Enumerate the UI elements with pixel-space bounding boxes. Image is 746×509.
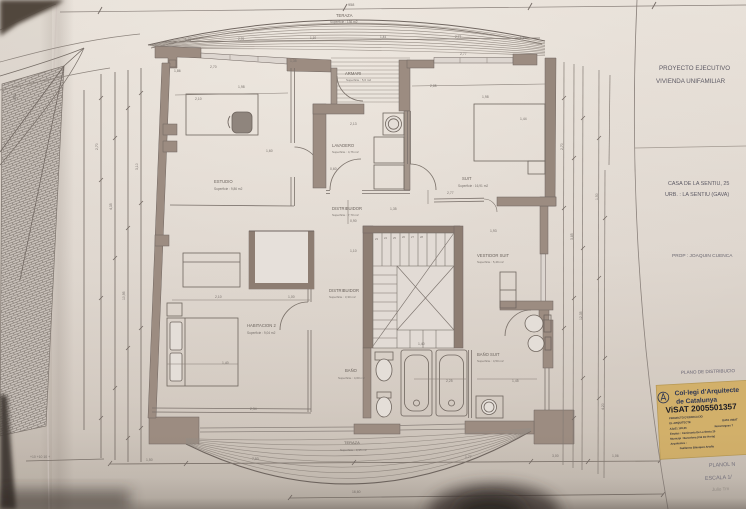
svg-text:Superficie : 3,30 m2: Superficie : 3,30 m2: [329, 295, 356, 299]
svg-text:1,44: 1,44: [380, 35, 386, 39]
svg-text:2,77: 2,77: [455, 35, 461, 39]
svg-text:1,60: 1,60: [266, 149, 273, 153]
svg-text:2,70: 2,70: [560, 143, 564, 150]
svg-text:CASA DE LA SENTIU, 25: CASA DE LA SENTIU, 25: [668, 181, 729, 187]
svg-text:0,90: 0,90: [350, 219, 357, 223]
svg-text:2,25: 2,25: [446, 379, 453, 383]
svg-text:Superficie : 5,49 m2: Superficie : 5,49 m2: [477, 260, 504, 264]
svg-text:LAVADERO: LAVADERO: [332, 143, 355, 148]
svg-text:1,93: 1,93: [490, 229, 497, 233]
svg-text:1,54: 1,54: [520, 36, 526, 40]
svg-text:1,00: 1,00: [288, 295, 295, 299]
svg-text:2,34: 2,34: [250, 407, 257, 411]
svg-text:2,70: 2,70: [210, 65, 217, 69]
svg-text:1,35: 1,35: [390, 207, 397, 211]
svg-text:1,10: 1,10: [350, 249, 357, 253]
svg-text:958: 958: [348, 3, 354, 7]
svg-text:Superficie : 4,76 m2: Superficie : 4,76 m2: [332, 150, 359, 154]
svg-text:ESTUDIO: ESTUDIO: [214, 179, 233, 184]
svg-text:VESTIDOR SUIT: VESTIDOR SUIT: [477, 253, 510, 258]
svg-text:VIVIENDA UNIFAMILIAR: VIVIENDA UNIFAMILIAR: [656, 78, 726, 85]
svg-text:12,35: 12,35: [579, 311, 583, 320]
svg-text:2,77: 2,77: [447, 191, 454, 195]
svg-text:10,95: 10,95: [122, 291, 126, 300]
svg-text:Superficie : 136 m2: Superficie : 136 m2: [330, 20, 358, 24]
svg-text:4,35: 4,35: [109, 203, 113, 210]
svg-text:3,85: 3,85: [570, 233, 574, 240]
svg-text:858: 858: [13, 94, 17, 100]
svg-text:2,10: 2,10: [215, 295, 222, 299]
svg-text:ARMARI: ARMARI: [345, 71, 361, 76]
svg-text:1,35: 1,35: [185, 38, 191, 42]
svg-text:1,98: 1,98: [482, 95, 489, 99]
svg-text:3,10: 3,10: [135, 163, 139, 170]
svg-text:2,10: 2,10: [195, 97, 202, 101]
svg-text:1,40: 1,40: [418, 342, 425, 346]
svg-text:2,70: 2,70: [95, 143, 99, 150]
svg-text:PROP : JOAQUIN CUENCA: PROP : JOAQUIN CUENCA: [672, 253, 733, 259]
svg-text:1,50: 1,50: [595, 193, 599, 200]
svg-text:Superficie : 4,60 m2: Superficie : 4,60 m2: [338, 376, 365, 380]
svg-text:Superficie : 7,70 m2: Superficie : 7,70 m2: [332, 213, 359, 217]
svg-text:Superficie : 5,6 m2: Superficie : 5,6 m2: [346, 78, 371, 82]
svg-text:HABITACION 2: HABITACION 2: [247, 323, 276, 328]
svg-text:4,20: 4,20: [601, 403, 605, 410]
svg-text:DISTRIBUIDOR: DISTRIBUIDOR: [329, 288, 359, 293]
svg-text:1,86: 1,86: [174, 69, 181, 73]
svg-text:1,45: 1,45: [512, 379, 519, 383]
svg-text:BAÑO SUIT: BAÑO SUIT: [477, 352, 500, 357]
svg-text:1,10: 1,10: [310, 36, 316, 40]
svg-text:2,70: 2,70: [238, 37, 244, 41]
svg-text:1,98: 1,98: [238, 85, 245, 89]
svg-text:2,13: 2,13: [350, 122, 357, 126]
svg-text:2,77: 2,77: [460, 52, 467, 56]
svg-text:Superficie : 9,04 m2: Superficie : 9,04 m2: [247, 331, 276, 335]
svg-text:BAÑO: BAÑO: [345, 368, 358, 373]
svg-text:PROYECTO EJECUTIVO: PROYECTO EJECUTIVO: [659, 65, 730, 72]
svg-text:1,44: 1,44: [520, 117, 527, 121]
svg-text:1,40: 1,40: [222, 361, 229, 365]
svg-text:TERAZA: TERAZA: [336, 13, 353, 18]
svg-text:Superficie : 16,91 m2: Superficie : 16,91 m2: [458, 184, 488, 188]
svg-text:0,60: 0,60: [330, 167, 337, 171]
svg-text:SUIT: SUIT: [462, 176, 472, 181]
svg-text:1,35: 1,35: [290, 59, 297, 63]
svg-text:Superficie : 9,86 m2: Superficie : 9,86 m2: [214, 187, 243, 191]
svg-text:Superficie : 4,50 m2: Superficie : 4,50 m2: [477, 359, 504, 363]
svg-text:URB. : LA SENTIU (GAVA): URB. : LA SENTIU (GAVA): [665, 192, 729, 198]
svg-text:DISTRIBUIDOR: DISTRIBUIDOR: [332, 206, 362, 211]
